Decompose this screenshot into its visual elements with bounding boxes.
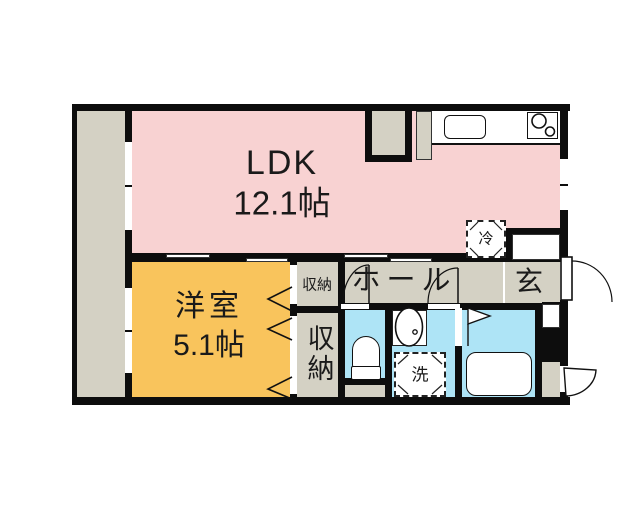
pipe-space-white-box <box>542 304 560 328</box>
wall-right <box>560 104 568 405</box>
laundry-label: 洗 <box>412 367 429 384</box>
washbasin-counter <box>392 310 427 346</box>
hall-label: ホール <box>351 267 456 296</box>
floor-plan-canvas: LDK 12.1帖 洋室 5.1帖 ホール 玄 収納 収納 冷 洗 <box>0 0 640 512</box>
western-room-area-label: 5.1帖 <box>173 331 245 361</box>
sliding-door-western-panel <box>246 258 288 262</box>
meter-box-door-icon <box>564 368 596 396</box>
refrigerator-label: 冷 <box>478 232 493 247</box>
opening-meter-box-door <box>560 366 568 392</box>
meter-box <box>542 362 560 397</box>
window-tick <box>125 230 132 232</box>
toilet-tank-icon <box>351 366 381 380</box>
opening-entrance-door <box>560 262 568 300</box>
wall-bottom <box>72 397 570 405</box>
duct-strip <box>416 111 432 160</box>
window-tick <box>125 330 132 332</box>
ldk-area-label: 12.1帖 <box>233 187 330 220</box>
window-tick <box>125 286 132 288</box>
window-tick <box>560 184 568 186</box>
wall-bathroom-right <box>535 303 542 405</box>
wall-top <box>72 104 570 111</box>
entrance-label: 玄 <box>515 268 543 296</box>
kitchen-sink-icon <box>444 115 486 139</box>
sliding-door-hall-panel <box>390 258 432 262</box>
toilet-icon <box>352 336 380 369</box>
western-room-label: 洋室 <box>175 292 243 322</box>
pipe-space-black-box <box>542 328 560 362</box>
opening-storage-lower <box>290 316 297 394</box>
opening-storage-upper <box>290 265 297 304</box>
balcony-floor <box>77 111 125 397</box>
toilet-back-floor <box>345 385 385 397</box>
wall-storage-mid <box>297 306 338 313</box>
sliding-door-western-panel <box>166 254 210 258</box>
window-tick <box>560 210 568 212</box>
window-tick <box>560 157 568 159</box>
ldk-label: LDK <box>246 146 318 180</box>
duct-box <box>372 111 405 155</box>
opening-bathroom-door <box>455 308 462 346</box>
opening-toilet-door <box>341 304 369 309</box>
shoe-cabinet <box>512 234 560 260</box>
bathtub-icon <box>466 352 532 396</box>
stove-icon <box>527 112 558 139</box>
window-tick <box>125 140 132 142</box>
sliding-door-hall-panel <box>344 254 388 258</box>
window-tick <box>125 373 132 375</box>
wall-left-balcony-rail <box>72 104 77 405</box>
wall-entrance-left <box>505 228 512 262</box>
entrance-door-arc-icon <box>572 261 612 302</box>
window-tick <box>125 185 132 187</box>
storage-upper-label: 収納 <box>302 278 332 293</box>
wall-toilet-right <box>385 303 392 405</box>
storage-lower-label: 収納 <box>305 324 332 384</box>
